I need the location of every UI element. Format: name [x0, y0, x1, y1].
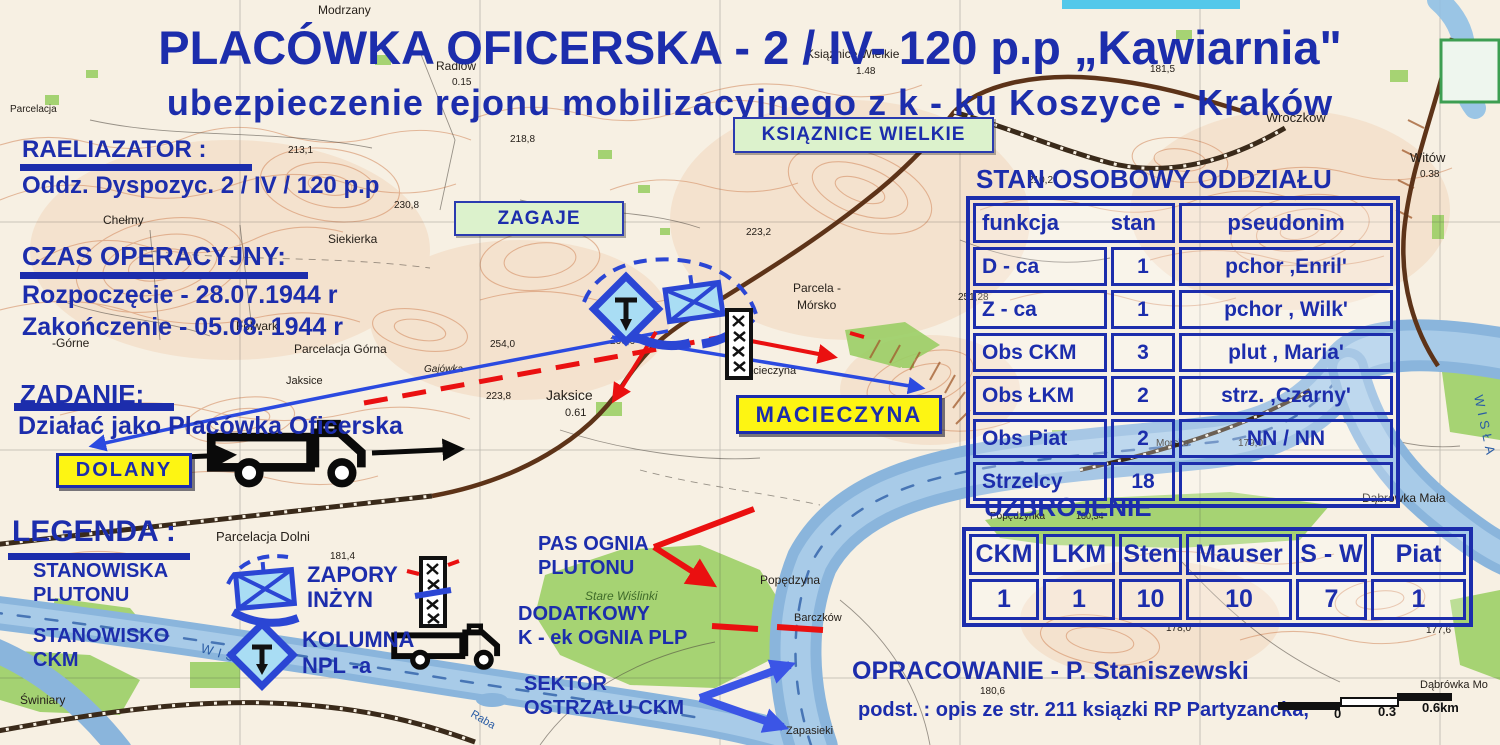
legend-ckm-position-line2: CKM — [33, 650, 79, 671]
operational-time-underline — [20, 272, 308, 279]
table-cell: 10 — [1186, 579, 1292, 620]
table-cell: pchor , Wilk' — [1179, 290, 1393, 329]
map-label: Chełmy — [103, 213, 144, 227]
map-label: Barczków — [794, 612, 842, 624]
extra-fire-label-line2: K - ek OGNIA PLP — [518, 628, 687, 649]
map-label: 180,6 — [980, 686, 1005, 697]
legend-npl-column-line2: NPL -a — [302, 655, 371, 678]
operational-time-heading: CZAS OPERACYJNY: — [22, 243, 286, 270]
map-label: Jaksice — [546, 387, 593, 403]
map-label: Zapasieki — [786, 725, 833, 737]
table-cell: 1 — [1043, 579, 1115, 620]
credits-author: OPRACOWANIE - P. Staniszewski — [852, 658, 1249, 684]
table-cell — [1179, 462, 1393, 501]
table-cell: S - W — [1296, 534, 1367, 575]
scale-bar: 0 0.3 0.6km — [1278, 690, 1458, 724]
table-cell: D - ca — [973, 247, 1107, 286]
realizator-value: Oddz. Dyspozyc. 2 / IV / 120 p.p — [22, 174, 379, 199]
legend-engineer-obstacles-line2: INŻYN — [307, 589, 373, 612]
extra-fire-label-line1: DODATKOWY — [518, 604, 650, 625]
extra-fire-dash-1 — [712, 626, 758, 629]
map-label: Jaksice — [286, 375, 323, 387]
map-label: 0.38 — [1420, 169, 1440, 180]
place-label-dolany: DOLANY — [56, 453, 192, 488]
place-label-macieczyna: MACIECZYNA — [736, 395, 942, 434]
armament-table: CKMLKMStenMauserS - WPiat11101071 — [962, 527, 1473, 627]
scale-label-0: 0 — [1334, 706, 1341, 721]
map-label: Parcela - — [793, 281, 841, 295]
map-label: Parcelacja Dolni — [216, 529, 310, 544]
table-cell: pchor ,Enril' — [1179, 247, 1393, 286]
map-label: Witów — [1410, 150, 1446, 165]
realizator-heading: RAELIAZATOR : — [22, 138, 206, 163]
page-title: PLACÓWKA OFICERSKA - 2 / IV- 120 p.p „Ka… — [0, 20, 1500, 75]
table-cell: Piat — [1371, 534, 1466, 575]
table-cell: 1 — [1111, 290, 1175, 329]
time-end: Zakończenie - 05.08. 1944 r — [22, 314, 343, 340]
map-label: 223,8 — [486, 391, 511, 402]
map-label: 213,1 — [288, 145, 313, 156]
table-cell: 1 — [1371, 579, 1466, 620]
table-cell: 2 — [1111, 376, 1175, 415]
map-label: Świniary — [20, 692, 65, 707]
ckm-sector-label-line2: OSTRZAŁU CKM — [524, 698, 684, 719]
credits-source: podst. : opis ze str. 211 ksiązki RP Par… — [858, 700, 1309, 721]
legend-underline — [8, 553, 190, 560]
table-cell: 1 — [969, 579, 1039, 620]
personnel-table-title: STAN OSOBOWY ODDZIAŁU — [976, 166, 1332, 193]
armament-table-title: UZBROJENIE — [984, 494, 1152, 521]
table-cell: Obs Piat — [973, 419, 1107, 458]
table-cell: 1 — [1111, 247, 1175, 286]
map-label: Modrzany — [318, 3, 371, 17]
map-label: Siekierka — [328, 232, 378, 246]
legend-platoon-positions-line1: STANOWISKA — [33, 561, 168, 582]
table-cell: 7 — [1296, 579, 1367, 620]
legend-heading: LEGENDA : — [12, 516, 176, 547]
table-cell: 2 — [1111, 419, 1175, 458]
table-cell: Z - ca — [973, 290, 1107, 329]
table-cell: 3 — [1111, 333, 1175, 372]
table-cell: 10 — [1119, 579, 1182, 620]
realizator-underline — [20, 164, 252, 171]
map-label: 181,4 — [330, 551, 355, 562]
table-cell: Obs ŁKM — [973, 376, 1107, 415]
map-label: Mórsko — [797, 298, 837, 312]
legend-engineer-obstacles-line1: ZAPORY — [307, 564, 398, 587]
map-label: Stare Wiślinki — [585, 589, 658, 603]
map-edge-strip — [1062, 0, 1240, 9]
table-cell: CKM — [969, 534, 1039, 575]
map-label: Popędzyna — [760, 573, 820, 587]
map-label: 0.61 — [565, 407, 586, 419]
personnel-table: funkcjastanpseudonimD - ca1pchor ,Enril'… — [966, 196, 1400, 508]
fire-belt-label-line2: PLUTONU — [538, 558, 634, 579]
map-label: 254,0 — [490, 339, 515, 350]
time-start: Rozpoczęcie - 28.07.1944 r — [22, 282, 337, 308]
place-label-ksiaznice-wielkie: KSIĄZNICE WIELKIE — [733, 117, 994, 153]
ckm-sector-label-line1: SEKTOR — [524, 674, 607, 695]
task-underline — [14, 403, 174, 411]
fire-belt-label-line1: PAS OGNIA — [538, 534, 649, 555]
map-page: ModrzanyRadlów0.15Ksiąznice Wielkie1.48W… — [0, 0, 1500, 745]
legend-ckm-position-line1: STANOWISKO — [33, 626, 169, 647]
table-cell: Mauser — [1186, 534, 1292, 575]
map-label: 230,8 — [394, 200, 419, 211]
table-cell: pseudonim — [1179, 203, 1393, 243]
map-label: Parcelacja Górna — [294, 342, 387, 356]
map-label: 223,2 — [746, 227, 771, 238]
map-label: 218,8 — [510, 134, 535, 145]
scale-bar-segment — [1278, 702, 1340, 710]
extra-fire-dash-2 — [777, 627, 823, 630]
scale-label-end: 0.6km — [1422, 700, 1459, 715]
table-header-cell: funkcjastan — [973, 203, 1175, 243]
table-cell: NN / NN — [1179, 419, 1393, 458]
task-value: Działać jako Placówka Oficerska — [18, 413, 403, 439]
place-label-zagaje: ZAGAJE — [454, 201, 624, 236]
table-cell: Sten — [1119, 534, 1182, 575]
table-cell: Obs CKM — [973, 333, 1107, 372]
legend-platoon-positions-line2: PLUTONU — [33, 585, 129, 606]
legend-npl-column-line1: KOLUMNA — [302, 629, 414, 652]
barrier-icon — [727, 310, 751, 378]
table-cell: LKM — [1043, 534, 1115, 575]
table-cell: plut , Maria' — [1179, 333, 1393, 372]
scale-label-mid: 0.3 — [1378, 704, 1396, 719]
table-cell: strz. ,Czarny' — [1179, 376, 1393, 415]
